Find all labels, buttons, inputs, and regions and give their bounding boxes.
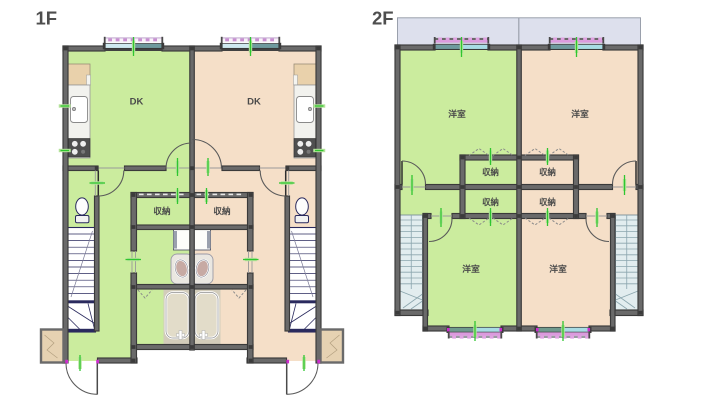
svg-text:2F: 2F (372, 8, 394, 29)
svg-text:DK: DK (247, 97, 261, 108)
svg-text:収納: 収納 (153, 205, 171, 216)
svg-text:洋室: 洋室 (549, 263, 567, 274)
svg-text:収納: 収納 (539, 167, 556, 177)
svg-text:洋室: 洋室 (462, 263, 480, 274)
svg-text:収納: 収納 (482, 167, 499, 177)
svg-text:収納: 収納 (213, 205, 231, 216)
svg-text:収納: 収納 (539, 197, 556, 207)
svg-text:1F: 1F (36, 8, 58, 29)
svg-text:収納: 収納 (482, 197, 499, 207)
svg-text:DK: DK (130, 97, 144, 108)
svg-text:洋室: 洋室 (571, 108, 589, 119)
svg-text:洋室: 洋室 (448, 108, 466, 119)
